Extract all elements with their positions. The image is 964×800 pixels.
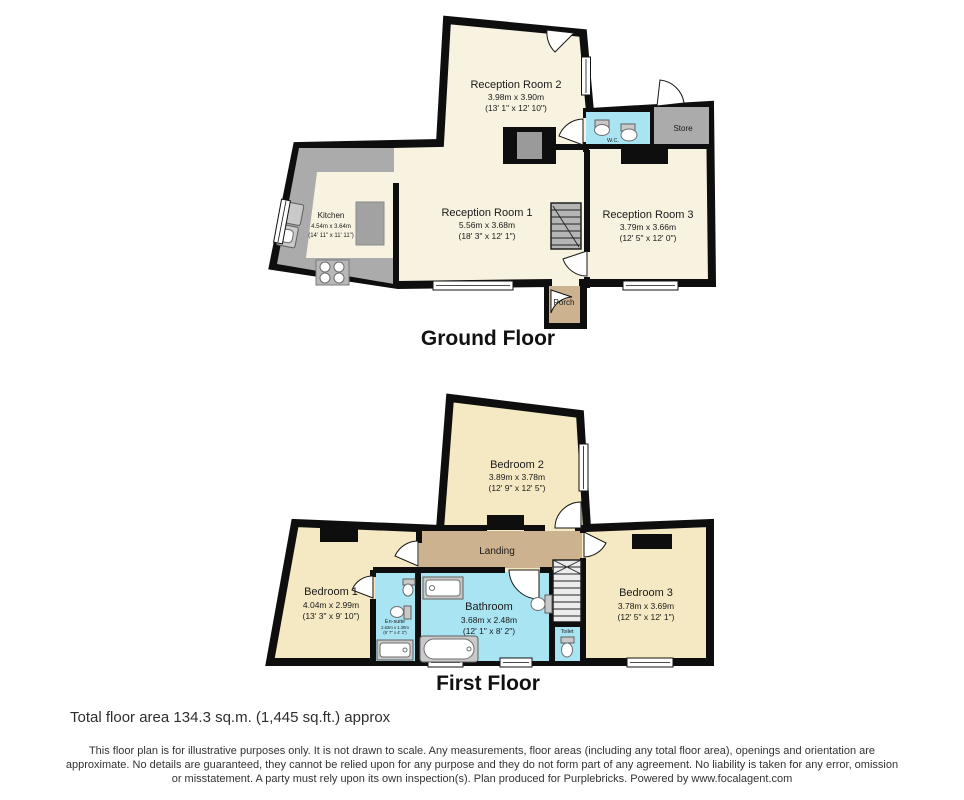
room-dim-imperial: (14' 11" x 11' 11") <box>308 233 354 239</box>
shower-drain <box>403 648 407 652</box>
room-dim-metric: 5.56m x 3.68m <box>459 220 515 230</box>
toilet-cistern <box>561 637 574 643</box>
bath-tap <box>467 647 471 651</box>
room-dim-imperial: (12' 5" x 12' 1") <box>617 612 674 622</box>
hob-burner <box>320 262 330 272</box>
disclaimer: This floor plan is for illustrative purp… <box>0 745 964 786</box>
room-dim-metric: 3.98m x 3.90m <box>488 92 544 102</box>
room-dim-imperial: (12' 5" x 12' 0") <box>619 233 676 243</box>
toilet-bowl <box>391 607 404 618</box>
disclaimer-line: This floor plan is for illustrative purp… <box>0 745 964 759</box>
room-label: Kitchen <box>318 211 345 220</box>
room-label: W.C. <box>607 138 619 144</box>
room-dim-imperial: (13' 3" x 9' 10") <box>302 611 359 621</box>
room-dim-metric: 3.78m x 3.69m <box>618 601 674 611</box>
stairs-ground <box>551 203 581 249</box>
room-label: Store <box>673 124 693 133</box>
room-label: Reception Room 1 <box>441 207 532 219</box>
chimney-block <box>632 534 672 549</box>
hob-burner <box>334 262 344 272</box>
chimney-block <box>320 526 358 542</box>
room-dim-metric: 3.79m x 3.66m <box>620 222 676 232</box>
room-dim-metric: 4.04m x 2.99m <box>303 600 359 610</box>
room-dim-imperial: (12' 1" x 8' 2") <box>463 626 515 636</box>
door-arc <box>657 80 684 106</box>
room-label: Reception Room 2 <box>470 79 561 91</box>
room-dim-imperial: (18' 3" x 12' 1") <box>458 231 515 241</box>
room-dim-imperial: (8' 7" x 4' 3") <box>383 630 407 635</box>
room-dim-metric: 4.54m x 3.64m <box>311 224 351 230</box>
toilet-bowl <box>531 598 545 611</box>
first-floor-plan: Bedroom 2 3.89m x 3.78m (12' 9" x 12' 5"… <box>270 398 710 667</box>
room-label: Bedroom 2 <box>490 459 544 471</box>
toilet-bowl <box>621 129 637 141</box>
hob-burner <box>334 273 344 283</box>
floor-plan-canvas: Reception Room 2 3.98m x 3.90m (13' 1" x… <box>0 0 964 800</box>
toilet-fixtures <box>561 637 574 657</box>
toilet-cistern <box>545 595 552 613</box>
sink-bowl <box>595 125 610 136</box>
stairs-body <box>553 560 581 622</box>
room-label: Toilet <box>561 629 574 635</box>
room-label: Bedroom 3 <box>619 587 673 599</box>
total-floor-area: Total floor area 134.3 sq.m. (1,445 sq.f… <box>70 709 390 726</box>
hob-burner <box>320 273 330 283</box>
disclaimer-line: approximate. No details are guaranteed, … <box>0 759 964 773</box>
room-label: Bathroom <box>465 601 513 613</box>
room-label: Porch <box>554 298 575 307</box>
first-floor-title: First Floor <box>436 672 540 695</box>
room-dim-metric: 3.68m x 2.48m <box>461 615 517 625</box>
toilet-cistern <box>404 606 411 619</box>
room-label: Bedroom 1 <box>304 586 358 598</box>
ground-floor-title: Ground Floor <box>421 327 555 350</box>
chimney-block <box>621 148 668 164</box>
room-dim-metric: 3.89m x 3.78m <box>489 472 545 482</box>
room-label: Landing <box>479 546 515 557</box>
stairs-first <box>553 560 581 622</box>
room-dim-imperial: (12' 9" x 12' 5") <box>488 483 545 493</box>
chimney-block <box>487 515 524 530</box>
chimney-breast <box>503 127 556 164</box>
room-dim-imperial: (13' 1" x 12' 10") <box>485 103 547 113</box>
kitchen-island <box>356 202 384 245</box>
ground-floor-plan: Reception Room 2 3.98m x 3.90m (13' 1" x… <box>273 20 712 325</box>
hob <box>316 260 349 285</box>
shower-drain <box>430 586 435 591</box>
sink-bowl <box>403 584 413 596</box>
fireplace <box>517 132 542 159</box>
toilet-bowl <box>562 643 573 657</box>
room-label: Reception Room 3 <box>602 209 693 221</box>
disclaimer-line: or misstatement. A party must rely upon … <box>0 773 964 787</box>
